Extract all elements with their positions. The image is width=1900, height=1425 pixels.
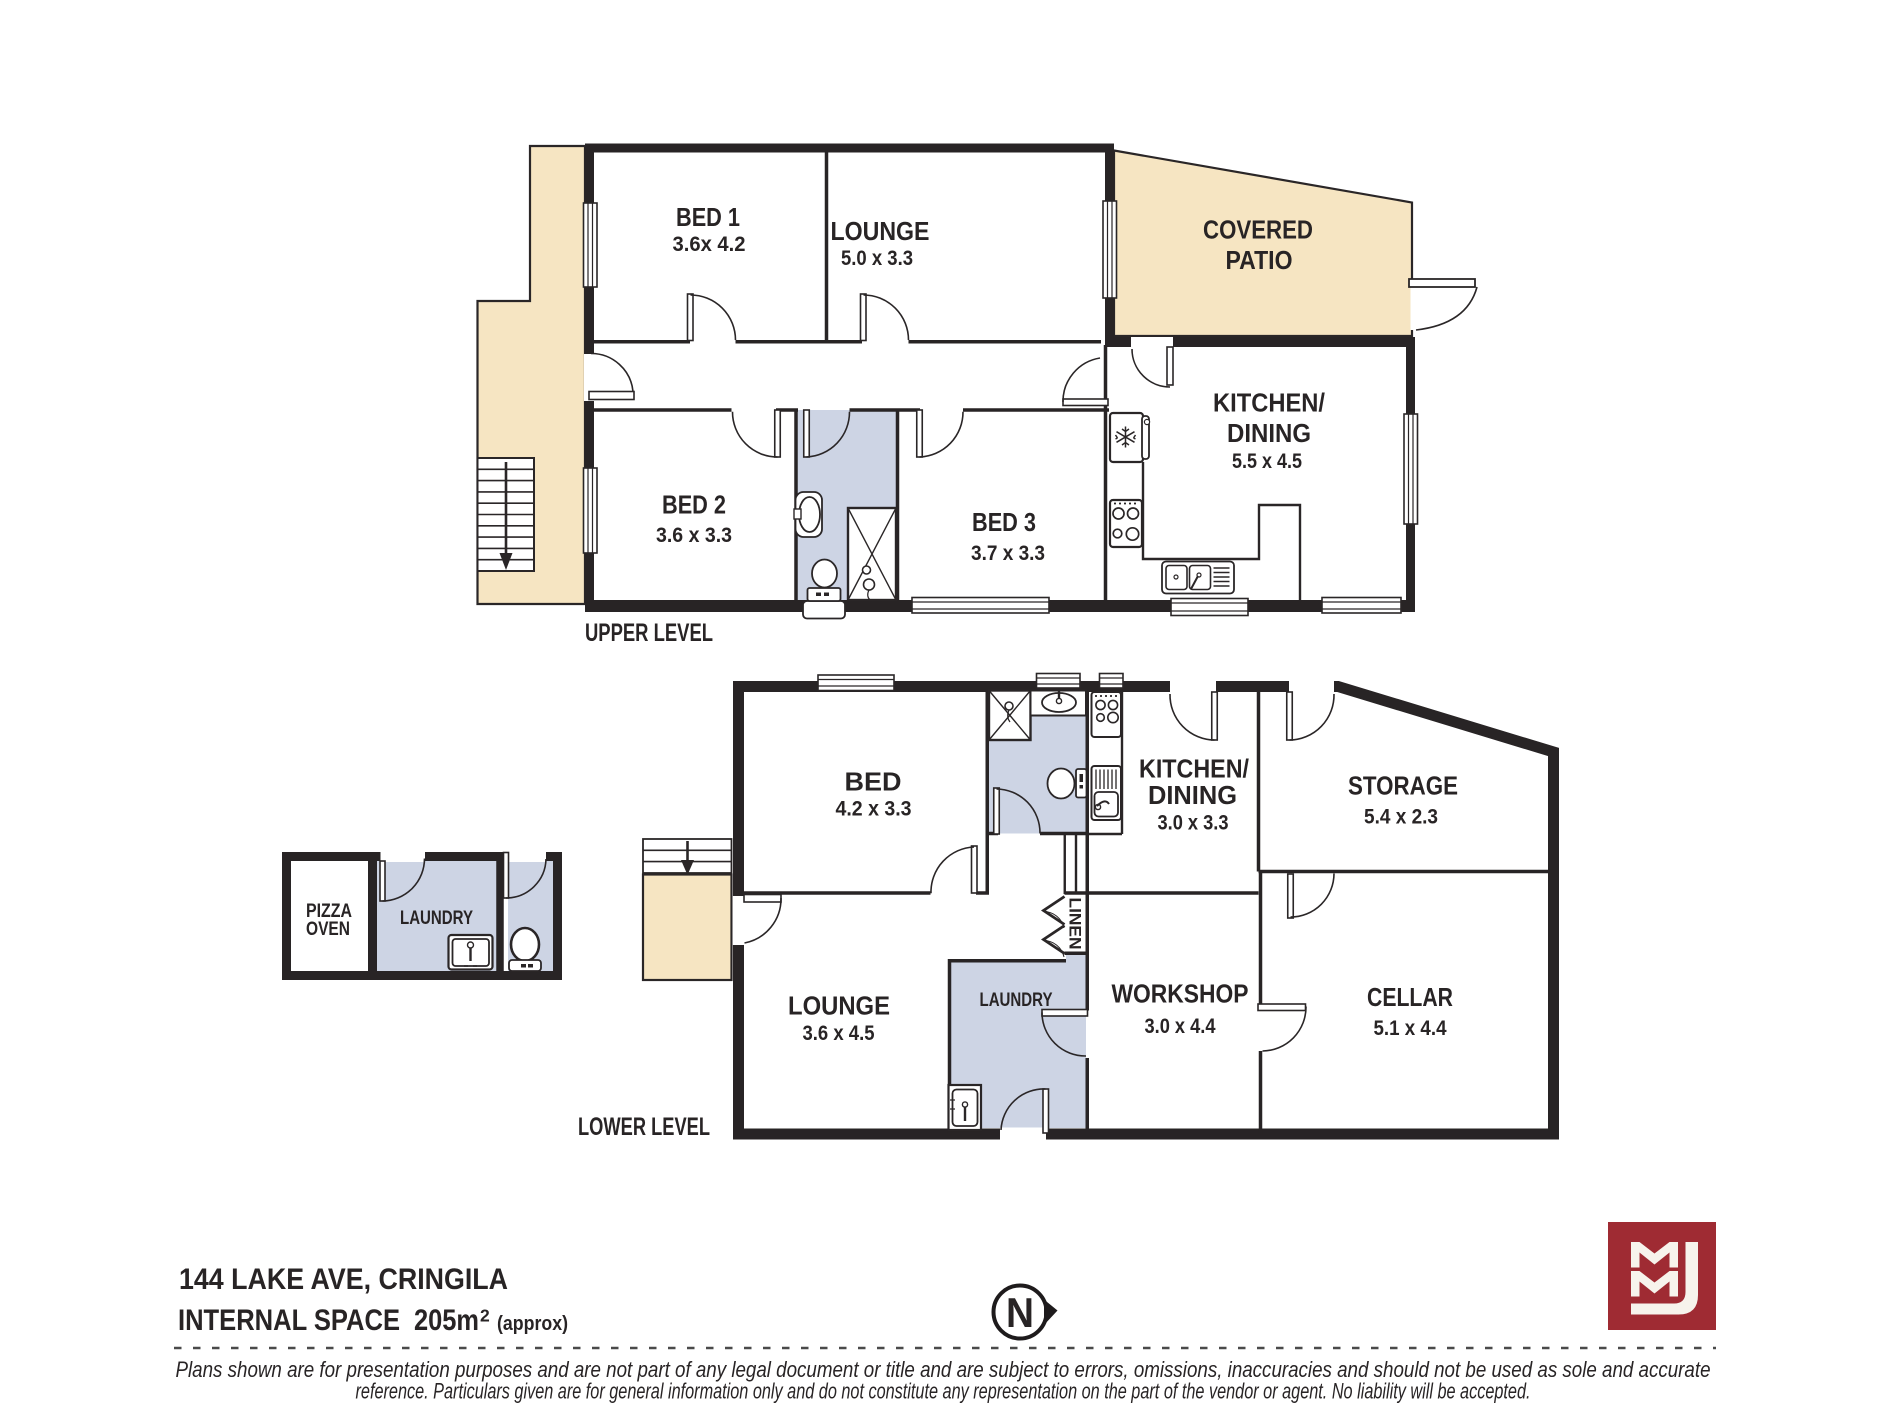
svg-text:5.5 x 4.5: 5.5 x 4.5	[1232, 450, 1302, 473]
svg-text:CELLAR: CELLAR	[1367, 982, 1453, 1012]
svg-text:BED: BED	[845, 767, 902, 797]
svg-text:BED 1: BED 1	[676, 202, 740, 232]
svg-text:2: 2	[480, 1306, 490, 1326]
svg-text:5.4 x 2.3: 5.4 x 2.3	[1364, 806, 1438, 829]
svg-text:3.7 x 3.3: 3.7 x 3.3	[971, 542, 1045, 565]
svg-text:N: N	[1006, 1289, 1034, 1336]
svg-text:3.6 x 4.5: 3.6 x 4.5	[803, 1022, 875, 1045]
svg-text:144 LAKE AVE, CRINGILA: 144 LAKE AVE, CRINGILA	[179, 1263, 508, 1296]
svg-text:WORKSHOP: WORKSHOP	[1112, 979, 1249, 1009]
svg-text:INTERNAL SPACE: INTERNAL SPACE	[178, 1304, 400, 1337]
svg-text:LOUNGE: LOUNGE	[788, 991, 890, 1021]
svg-text:LINEN: LINEN	[1066, 898, 1085, 950]
svg-text:(approx): (approx)	[497, 1313, 568, 1335]
svg-text:5.1 x 4.4: 5.1 x 4.4	[1374, 1017, 1447, 1040]
svg-text:3.0 x 3.3: 3.0 x 3.3	[1158, 812, 1229, 835]
svg-text:DINING: DINING	[1227, 418, 1311, 448]
svg-text:3.0 x 4.4: 3.0 x 4.4	[1145, 1015, 1216, 1038]
svg-text:DINING: DINING	[1148, 780, 1237, 810]
svg-text:STORAGE: STORAGE	[1348, 771, 1458, 801]
svg-text:5.0 x 3.3: 5.0 x 3.3	[841, 247, 913, 270]
svg-text:PATIO: PATIO	[1226, 245, 1293, 275]
svg-text:3.6x 4.2: 3.6x 4.2	[673, 233, 746, 256]
svg-text:OVEN: OVEN	[306, 919, 350, 940]
svg-text:COVERED: COVERED	[1203, 215, 1313, 245]
svg-text:BED 2: BED 2	[662, 490, 726, 520]
svg-text:BED 3: BED 3	[972, 507, 1036, 537]
svg-text:205m: 205m	[414, 1304, 479, 1337]
svg-text:KITCHEN/: KITCHEN/	[1139, 754, 1249, 784]
svg-text:reference. Particulars given a: reference. Particulars given are for gen…	[356, 1379, 1531, 1404]
svg-text:4.2 x 3.3: 4.2 x 3.3	[836, 798, 912, 821]
svg-text:LAUNDRY: LAUNDRY	[400, 908, 473, 929]
svg-text:LAUNDRY: LAUNDRY	[980, 990, 1053, 1011]
svg-text:LOUNGE: LOUNGE	[831, 216, 930, 246]
svg-text:LOWER LEVEL: LOWER LEVEL	[578, 1113, 710, 1141]
svg-text:KITCHEN/: KITCHEN/	[1213, 388, 1325, 418]
svg-text:UPPER LEVEL: UPPER LEVEL	[585, 619, 713, 647]
svg-text:3.6 x 3.3: 3.6 x 3.3	[656, 524, 732, 547]
